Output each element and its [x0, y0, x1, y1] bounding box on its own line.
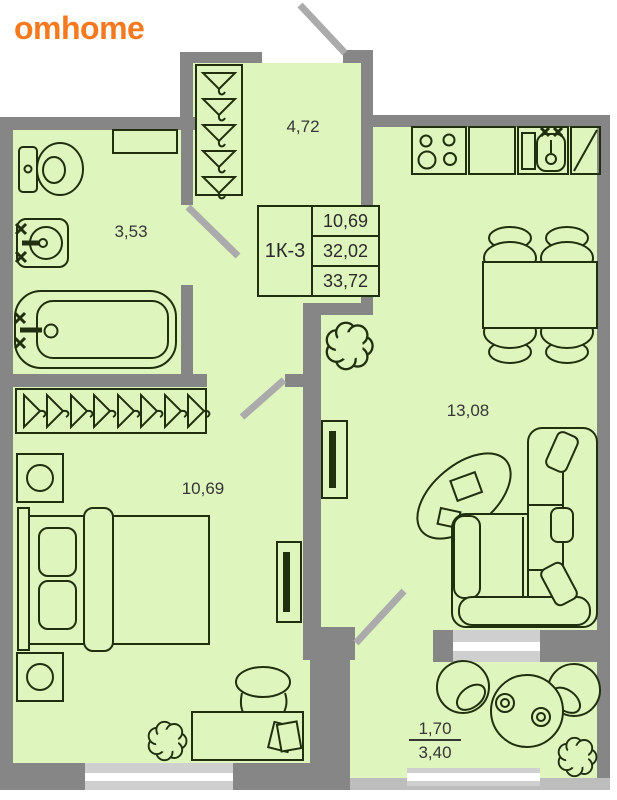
bedroom-door-swing: [242, 380, 284, 417]
nightstand-top: [17, 454, 63, 502]
unit-living-area: 10,69: [313, 207, 378, 237]
unit-info-card: 1К-3 10,69 32,02 33,72: [257, 205, 380, 297]
dining-set: [483, 227, 597, 363]
unit-areas: 10,69 32,02 33,72: [313, 207, 378, 295]
radiator-living: [322, 421, 347, 498]
unit-area-no-balcony: 32,02: [313, 237, 378, 267]
balcony-door-swing: [356, 591, 404, 643]
nightstand-bottom: [17, 653, 63, 701]
label-balcony-area-full: 3,40: [409, 743, 461, 763]
fridge: [571, 127, 600, 174]
unit-id: 1К-3: [259, 207, 313, 295]
entrance-door-swing: [300, 5, 345, 53]
plant-balcony: [559, 738, 597, 776]
label-balcony-area-reduced: 1,70: [409, 719, 461, 741]
bathroom-shelf: [113, 130, 177, 153]
radiator-bedroom: [277, 542, 301, 622]
toilet: [19, 143, 83, 195]
plant-living: [327, 323, 373, 369]
door-swings: [188, 5, 404, 643]
hall-wardrobe: [196, 65, 242, 198]
kitchen-sink: [518, 127, 568, 174]
unit-total-area: 33,72: [313, 267, 378, 295]
bedroom-wardrobe: [16, 389, 209, 433]
kitchen-counter: [469, 127, 515, 174]
bathroom-door-swing: [188, 207, 238, 256]
desk-chair: [236, 667, 290, 712]
plant-bedroom: [149, 722, 187, 760]
bed: [18, 508, 209, 651]
label-bedroom-area: 10,69: [172, 479, 234, 499]
bathroom-sink: [16, 219, 68, 267]
stove: [412, 127, 466, 174]
brand-logo: omhome: [14, 10, 144, 47]
balcony-chair-left: [427, 651, 500, 724]
label-kitchen-living-area: 13,08: [437, 401, 499, 421]
desk: [192, 712, 303, 760]
label-bathroom-area: 3,53: [100, 222, 162, 242]
bathtub: [15, 291, 176, 368]
floor-plan: omhome 4,72 3,53 10,69 13,08 1,70 3,40 1…: [0, 0, 617, 800]
balcony-table: [491, 675, 563, 747]
label-hallway-area: 4,72: [272, 117, 334, 137]
